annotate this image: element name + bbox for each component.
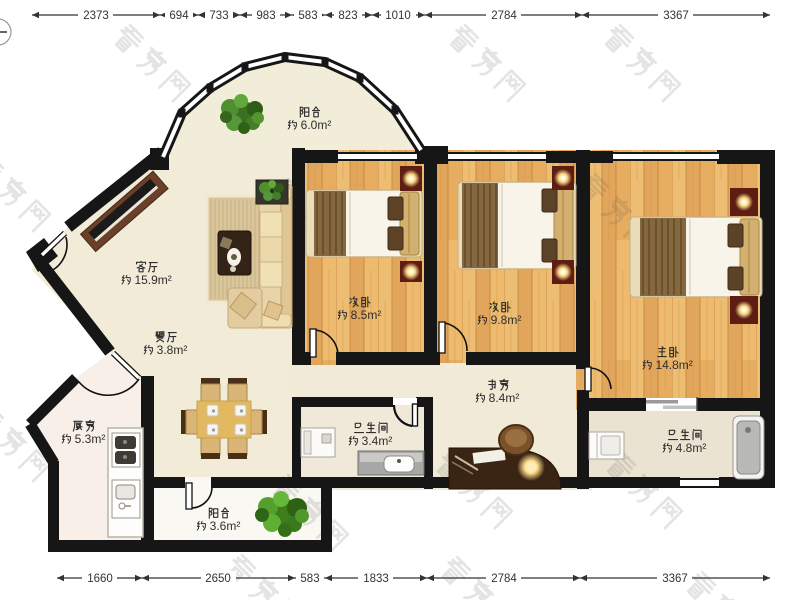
svg-text:2373: 2373 bbox=[83, 10, 109, 22]
svg-text:14.8m²: 14.8m² bbox=[655, 358, 692, 372]
svg-text:823: 823 bbox=[338, 10, 357, 22]
svg-text:3.6m²: 3.6m² bbox=[210, 519, 241, 533]
svg-text:2784: 2784 bbox=[491, 10, 517, 22]
svg-text:4.8m²: 4.8m² bbox=[676, 441, 707, 455]
svg-text:3367: 3367 bbox=[662, 573, 688, 585]
svg-text:5.3m²: 5.3m² bbox=[75, 432, 106, 446]
svg-text:583: 583 bbox=[298, 10, 317, 22]
svg-text:6.0m²: 6.0m² bbox=[301, 118, 332, 132]
svg-text:983: 983 bbox=[256, 10, 275, 22]
svg-text:3.8m²: 3.8m² bbox=[157, 343, 188, 357]
svg-text:9.8m²: 9.8m² bbox=[491, 313, 522, 327]
svg-text:1010: 1010 bbox=[385, 10, 411, 22]
svg-text:583: 583 bbox=[300, 573, 319, 585]
svg-text:15.9m²: 15.9m² bbox=[134, 273, 171, 287]
svg-text:694: 694 bbox=[169, 10, 189, 22]
svg-text:2650: 2650 bbox=[205, 573, 231, 585]
svg-text:1660: 1660 bbox=[87, 573, 113, 585]
svg-text:2784: 2784 bbox=[491, 573, 517, 585]
svg-text:8.5m²: 8.5m² bbox=[351, 308, 382, 322]
svg-text:3367: 3367 bbox=[663, 10, 689, 22]
svg-text:8.4m²: 8.4m² bbox=[489, 391, 520, 405]
svg-text:3.4m²: 3.4m² bbox=[362, 434, 393, 448]
svg-text:1833: 1833 bbox=[363, 573, 389, 585]
svg-text:733: 733 bbox=[209, 10, 228, 22]
